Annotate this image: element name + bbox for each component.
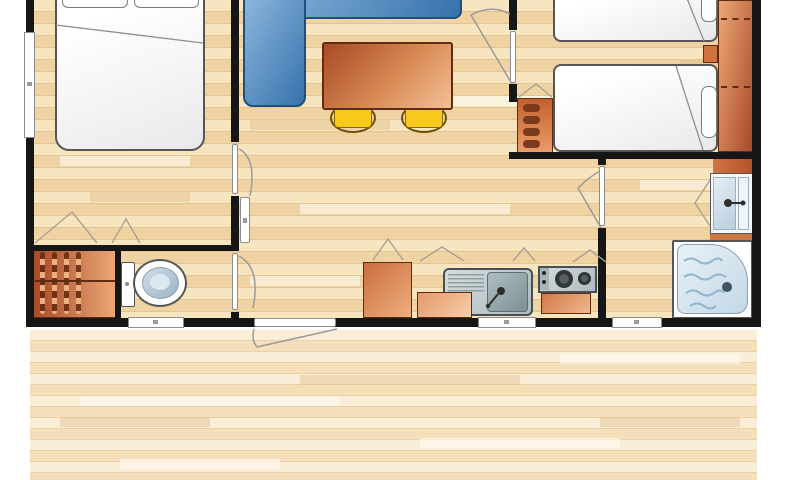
hob-knob [542,280,546,284]
pillow [701,86,717,138]
sink-basin [487,272,528,312]
window-divider [634,320,639,324]
entrance-door-leaf [254,318,336,327]
wall-wc-top [26,245,239,251]
deck-plank-shade [600,417,740,427]
pillow [134,0,199,8]
wall-right [752,0,761,327]
wall-bathroom [598,228,606,318]
door-leaf-bedroom1 [232,144,238,194]
hanging-clothes [52,252,57,314]
hob-burner-large [555,270,573,288]
wardrobe-tall [718,0,753,152]
window-divider [27,82,32,86]
wardrobe-shelf-dash [721,86,750,88]
single-bed [553,0,718,42]
deck-plank-shade [60,417,210,427]
shelf-items [523,104,540,112]
floor-plank-highlight [300,204,510,214]
hob-burner-small [578,272,591,285]
window-divider [153,320,158,324]
corner-sofa-short-section [243,0,306,107]
deck-plank-shade [300,375,520,385]
deck-plank-highlight [560,354,740,364]
pillow [62,0,128,8]
wall-bedroom1 [231,312,239,318]
wardrobe [33,247,117,318]
washbasin-panel [713,177,736,230]
hob-base-cabinet [541,293,591,314]
kitchen-counter [417,292,472,318]
deck-plank-highlight [80,396,340,406]
hanging-clothes [64,252,69,314]
floor-plank-highlight [250,276,360,286]
shelf-items [523,140,540,148]
tall-cabinet [363,262,412,318]
wardrobe-rail [35,280,115,282]
double-bed [55,0,205,151]
wall-bedroom1 [231,196,239,251]
shelf-items [523,128,540,136]
wall-bedroom2-bottom [509,152,761,159]
shelf-items [523,116,540,124]
deck-plank-highlight [120,459,280,469]
door-leaf-bathroom [599,166,605,226]
hanging-clothes [40,252,45,314]
floor-plank-shade [90,192,190,202]
floor-plan-canvas [0,0,796,480]
nightstand [703,45,718,63]
wall-wc-left [115,245,121,318]
dining-table [322,42,453,110]
wardrobe-shelf-dash [721,18,750,20]
pillow [701,0,717,22]
bathroom-counter-top [713,159,753,173]
wall-bedroom2 [509,84,517,102]
deck-plank-highlight [420,438,620,448]
door-leaf-bedroom2 [510,31,516,83]
wall-bathroom [598,159,606,165]
wall-bedroom1 [231,0,239,142]
washbasin-side-panel [738,177,749,230]
door-leaf-wc [232,253,238,310]
door-handle [243,218,247,223]
floor-plank-highlight [60,156,190,166]
hob-knob [542,271,546,275]
hanging-clothes [76,252,81,314]
wall-bedroom2 [509,0,517,30]
single-bed [553,64,718,152]
toilet-hinge [125,282,129,286]
toilet-bowl-highlight [150,274,170,290]
sink-drainboard [448,274,484,292]
window-divider [504,320,509,324]
